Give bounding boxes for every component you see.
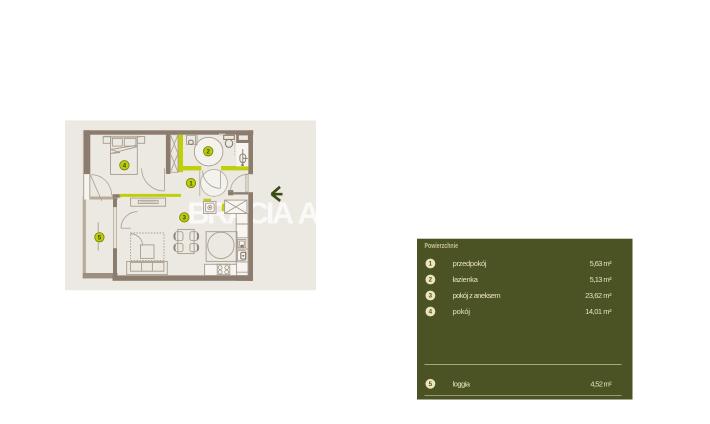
svg-text:A: A — [298, 196, 320, 231]
svg-text:14,01 m²: 14,01 m² — [585, 307, 612, 316]
svg-text:3: 3 — [183, 215, 187, 222]
svg-text:23,62 m²: 23,62 m² — [585, 291, 612, 300]
svg-text:4,52 m²: 4,52 m² — [590, 380, 612, 389]
svg-text:1: 1 — [429, 261, 433, 268]
svg-text:5,63 m²: 5,63 m² — [590, 259, 613, 268]
svg-text:pokój z aneksem: pokój z aneksem — [453, 291, 501, 300]
svg-text:2: 2 — [429, 277, 433, 284]
svg-text:3: 3 — [429, 293, 433, 300]
svg-text:5,13 m²: 5,13 m² — [590, 275, 613, 284]
svg-text:loggia: loggia — [453, 380, 471, 389]
svg-text:5: 5 — [98, 235, 102, 242]
svg-text:5: 5 — [429, 381, 433, 388]
svg-text:przedpokój: przedpokój — [453, 259, 487, 268]
svg-text:pokój: pokój — [453, 307, 471, 316]
svg-text:2: 2 — [206, 149, 210, 156]
svg-text:łazienka: łazienka — [453, 275, 479, 284]
svg-text:4: 4 — [429, 309, 433, 316]
svg-text:1: 1 — [189, 180, 193, 187]
svg-text:4: 4 — [123, 163, 127, 170]
svg-text:Powierzchnie: Powierzchnie — [425, 241, 459, 250]
